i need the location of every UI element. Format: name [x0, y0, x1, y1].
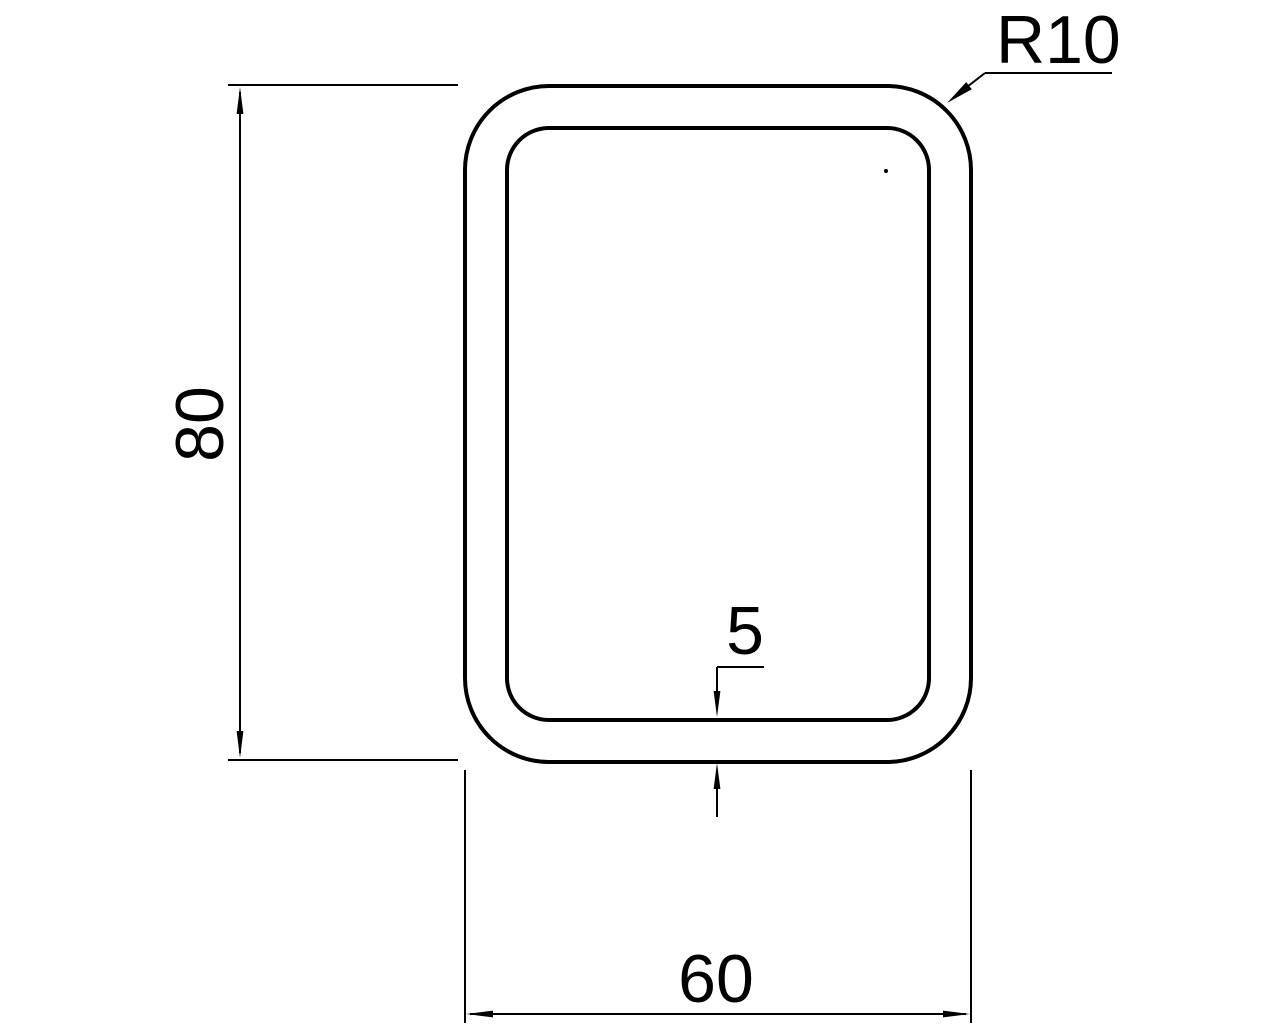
- width-arrow-right-icon: [943, 1011, 970, 1018]
- corner-radius-label: R10: [996, 2, 1121, 78]
- height-dimension-label: 80: [162, 386, 238, 462]
- outer-contour: [465, 86, 971, 762]
- width-dimension-label: 60: [678, 941, 754, 1017]
- wall-arrow-down-icon: [714, 691, 721, 717]
- drawing-stage: 80 60 5 R10: [0, 0, 1280, 1024]
- height-arrow-up-icon: [237, 87, 244, 114]
- radius-arrow-icon: [947, 82, 972, 103]
- technical-drawing-canvas: 80 60 5 R10: [0, 0, 1280, 1024]
- corner-radius-callout: R10: [947, 2, 1121, 103]
- height-dimension: 80: [162, 85, 458, 760]
- center-mark-dot: [884, 169, 888, 173]
- width-arrow-left-icon: [466, 1011, 493, 1018]
- wall-thickness-label: 5: [726, 593, 764, 669]
- height-arrow-down-icon: [237, 731, 244, 758]
- inner-contour: [507, 128, 929, 720]
- wall-arrow-up-icon: [714, 763, 721, 789]
- tube-cross-section: [465, 86, 971, 762]
- wall-thickness-dimension: 5: [714, 593, 764, 817]
